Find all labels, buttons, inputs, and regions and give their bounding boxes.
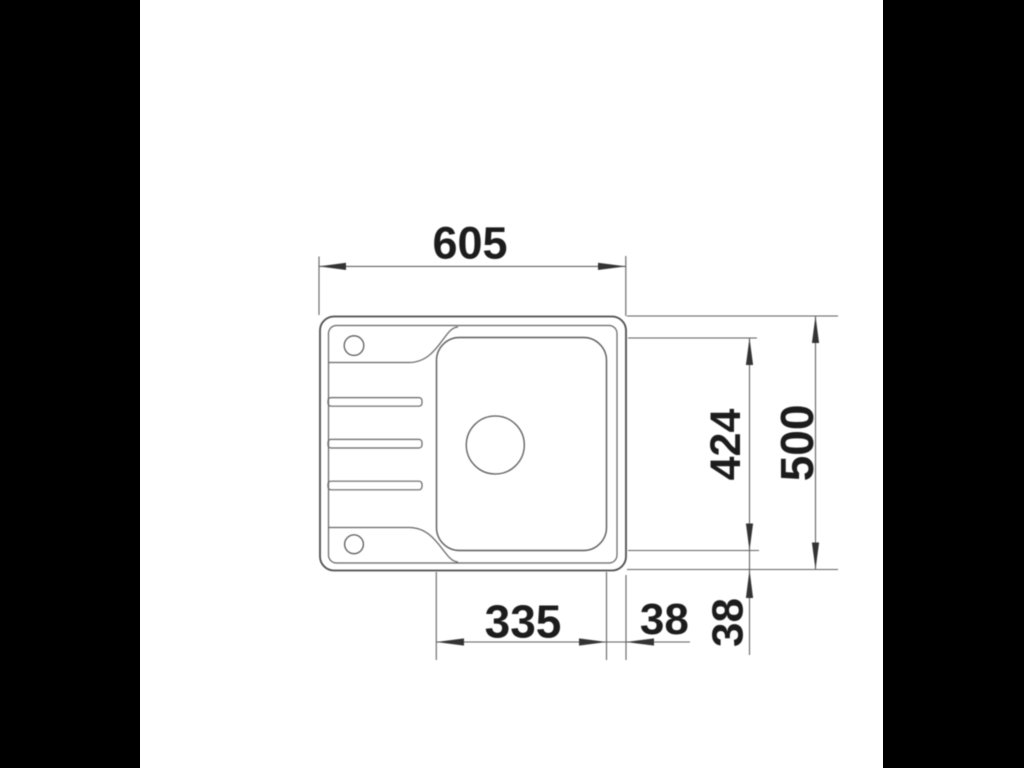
svg-text:500: 500 (771, 405, 823, 482)
svg-text:38: 38 (704, 598, 753, 647)
svg-text:605: 605 (432, 218, 507, 269)
svg-text:38: 38 (640, 595, 689, 644)
svg-text:424: 424 (702, 409, 750, 481)
svg-text:335: 335 (485, 596, 562, 648)
